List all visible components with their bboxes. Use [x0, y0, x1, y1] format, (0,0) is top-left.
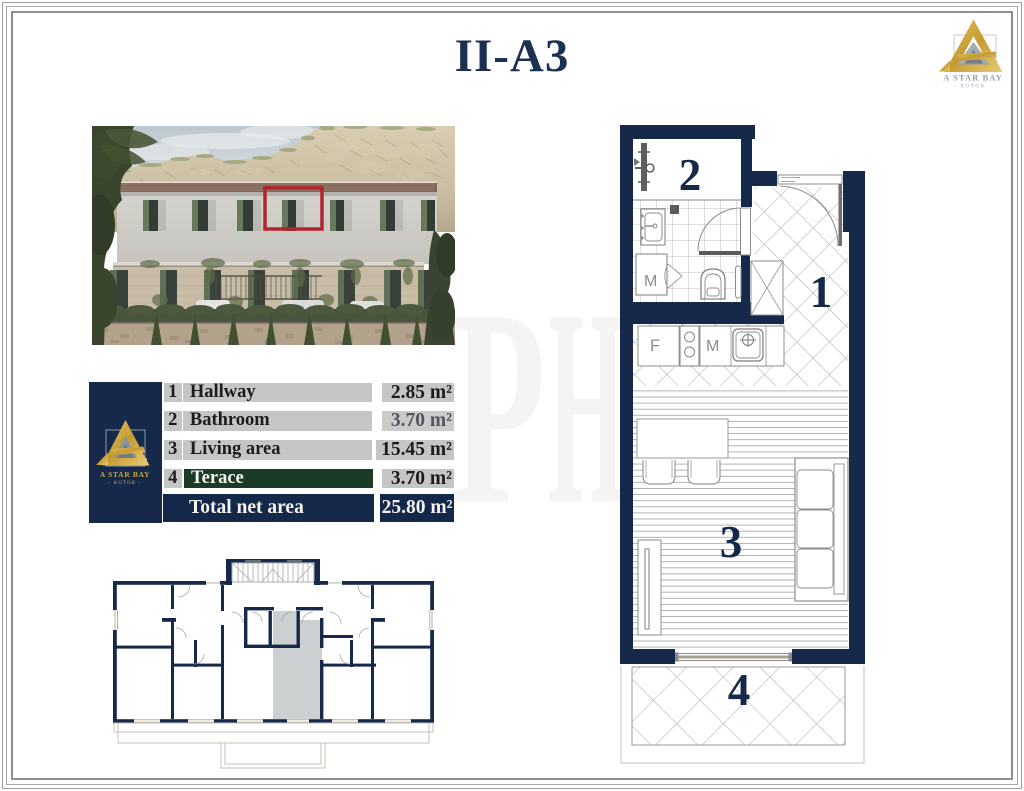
svg-text:1: 1 — [810, 267, 833, 317]
svg-text:A STAR BAY: A STAR BAY — [100, 470, 150, 479]
svg-text:F: F — [650, 337, 660, 355]
svg-text:M: M — [706, 338, 719, 355]
svg-text:2: 2 — [679, 150, 702, 200]
svg-text:A STAR BAY: A STAR BAY — [943, 73, 1003, 83]
svg-text:3: 3 — [720, 517, 743, 567]
svg-text:- KOTOR -: - KOTOR - — [954, 84, 991, 90]
svg-text:M: M — [644, 273, 657, 290]
svg-text:4: 4 — [728, 665, 751, 715]
svg-text:- KOTOR -: - KOTOR - — [109, 481, 142, 486]
